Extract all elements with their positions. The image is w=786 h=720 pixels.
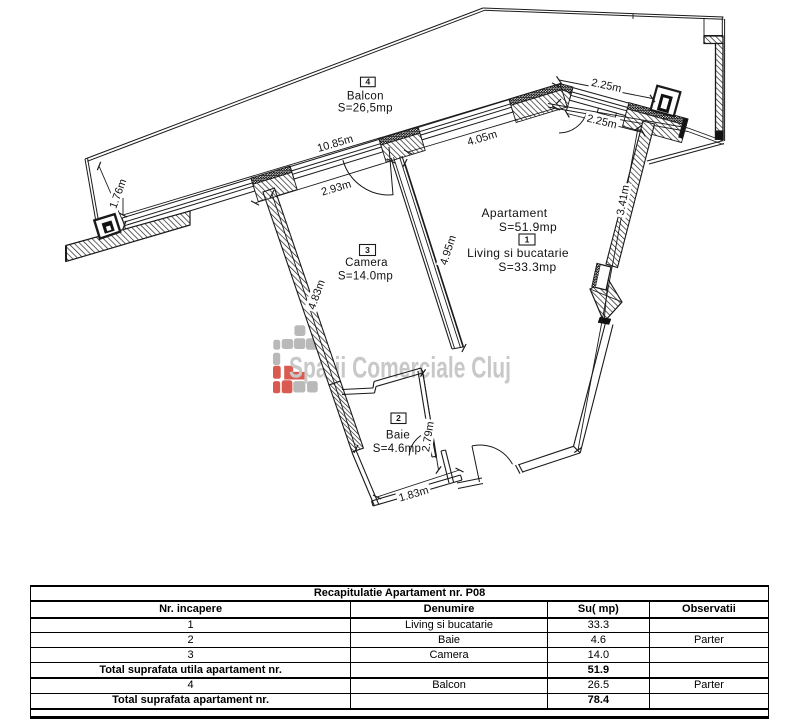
svg-text:4.95m: 4.95m xyxy=(438,234,459,267)
svg-text:S=51.9mp: S=51.9mp xyxy=(499,220,557,234)
svg-text:1.83m: 1.83m xyxy=(397,484,430,504)
svg-text:4: 4 xyxy=(366,76,371,86)
svg-text:Camera: Camera xyxy=(345,257,388,269)
svg-text:2.25m: 2.25m xyxy=(590,77,622,95)
svg-text:S=26,5mp: S=26,5mp xyxy=(338,103,393,115)
svg-text:2: 2 xyxy=(396,413,401,423)
svg-text:1: 1 xyxy=(525,235,530,245)
svg-text:3: 3 xyxy=(365,245,370,255)
svg-text:S=33.3mp: S=33.3mp xyxy=(498,260,556,274)
svg-text:S=4.6mp: S=4.6mp xyxy=(373,443,421,455)
svg-text:S=14.0mp: S=14.0mp xyxy=(338,271,393,283)
svg-text:Living si bucatarie: Living si bucatarie xyxy=(467,246,569,260)
svg-text:4.05m: 4.05m xyxy=(466,128,499,148)
svg-text:Apartament: Apartament xyxy=(481,206,547,220)
svg-text:Baie: Baie xyxy=(386,430,410,442)
svg-text:Balcon: Balcon xyxy=(347,91,384,103)
